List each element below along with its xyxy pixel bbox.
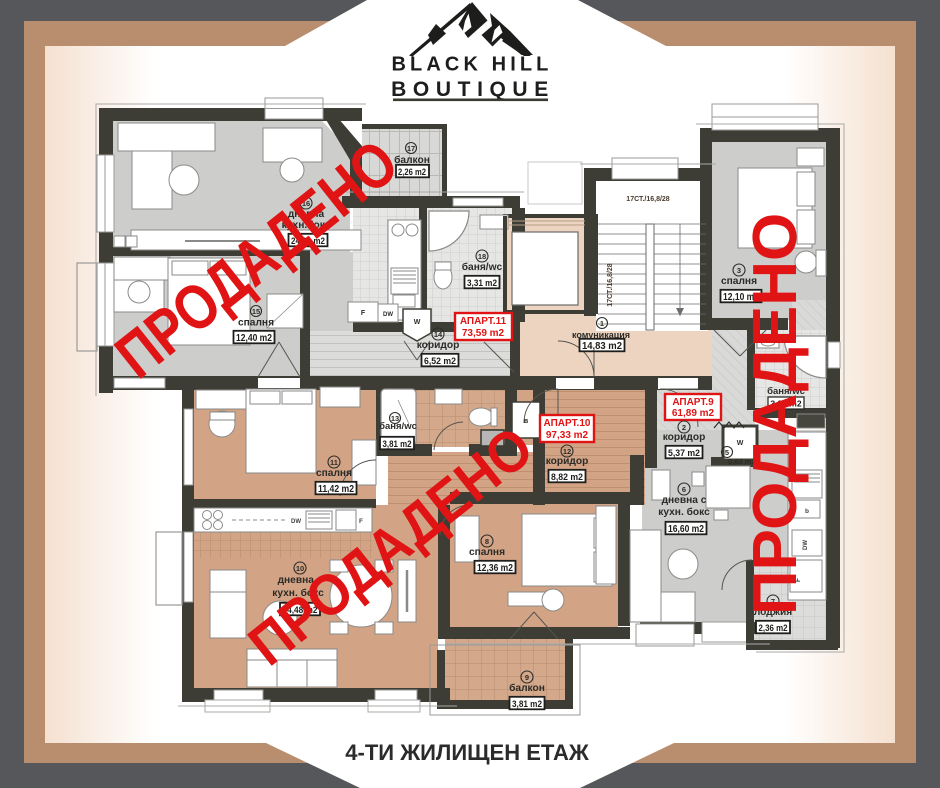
svg-text:8,82 m2: 8,82 m2 (551, 472, 583, 483)
svg-text:кухн. бокс: кухн. бокс (658, 506, 710, 518)
svg-text:спалня: спалня (469, 547, 505, 558)
svg-text:F: F (359, 518, 363, 525)
svg-text:14,83 m2: 14,83 m2 (582, 341, 622, 352)
svg-text:F: F (361, 310, 366, 317)
svg-text:4-ТИ ЖИЛИЩЕН ЕТАЖ: 4-ТИ ЖИЛИЩЕН ЕТАЖ (345, 740, 589, 765)
svg-text:9: 9 (525, 673, 529, 682)
svg-text:баня/wc: баня/wc (379, 421, 417, 432)
svg-text:5: 5 (725, 448, 729, 457)
svg-text:АПАРТ.10: АПАРТ.10 (544, 418, 591, 429)
svg-text:2: 2 (682, 423, 686, 432)
svg-text:97,33 m2: 97,33 m2 (546, 430, 589, 441)
svg-text:АПАРТ.9: АПАРТ.9 (672, 397, 714, 408)
svg-text:15: 15 (252, 307, 260, 316)
svg-text:11: 11 (330, 458, 338, 467)
svg-text:ПРОДАДЕНО: ПРОДАДЕНО (741, 213, 810, 615)
svg-text:17СТ./16,8/28: 17СТ./16,8/28 (626, 196, 670, 203)
svg-text:дневна с: дневна с (662, 495, 707, 506)
svg-text:6,52 m2: 6,52 m2 (424, 356, 456, 367)
svg-text:BOUTIQUE: BOUTIQUE (391, 78, 555, 101)
svg-text:коридор: коридор (546, 456, 589, 467)
svg-text:DW: DW (291, 519, 301, 525)
svg-text:12,36 m2: 12,36 m2 (477, 563, 513, 574)
svg-text:18: 18 (478, 252, 486, 261)
svg-text:W: W (414, 319, 421, 326)
svg-text:2,36 m2: 2,36 m2 (759, 623, 788, 633)
svg-text:BLACK HILL: BLACK HILL (392, 54, 553, 76)
svg-text:3,81 m2: 3,81 m2 (512, 699, 542, 709)
svg-text:6: 6 (682, 485, 686, 494)
svg-text:DW: DW (383, 312, 393, 318)
svg-text:8: 8 (485, 537, 489, 546)
svg-text:АПАРТ.11: АПАРТ.11 (460, 316, 507, 327)
svg-text:10: 10 (296, 564, 304, 573)
svg-text:73,59 m2: 73,59 m2 (462, 328, 505, 339)
svg-text:баня/wc: баня/wc (462, 261, 503, 273)
svg-text:5,37 m2: 5,37 m2 (668, 448, 700, 459)
svg-text:17СТ./16,8/28: 17СТ./16,8/28 (607, 263, 614, 307)
svg-text:спалня: спалня (238, 318, 274, 329)
svg-text:11,42 m2: 11,42 m2 (318, 484, 354, 495)
svg-text:12: 12 (563, 447, 571, 456)
svg-text:3,31 m2: 3,31 m2 (467, 278, 497, 288)
svg-text:1: 1 (600, 319, 604, 328)
svg-text:спалня: спалня (316, 468, 352, 479)
svg-text:16,60 m2: 16,60 m2 (668, 524, 704, 535)
svg-text:коридор: коридор (417, 340, 460, 351)
svg-text:61,89 m2: 61,89 m2 (672, 408, 715, 419)
svg-text:12,40 m2: 12,40 m2 (236, 333, 272, 344)
svg-text:14: 14 (434, 330, 443, 339)
svg-text:17: 17 (407, 144, 415, 153)
svg-text:коридор: коридор (663, 432, 706, 443)
svg-text:балкон: балкон (509, 682, 545, 694)
svg-text:3,81 m2: 3,81 m2 (383, 439, 412, 449)
